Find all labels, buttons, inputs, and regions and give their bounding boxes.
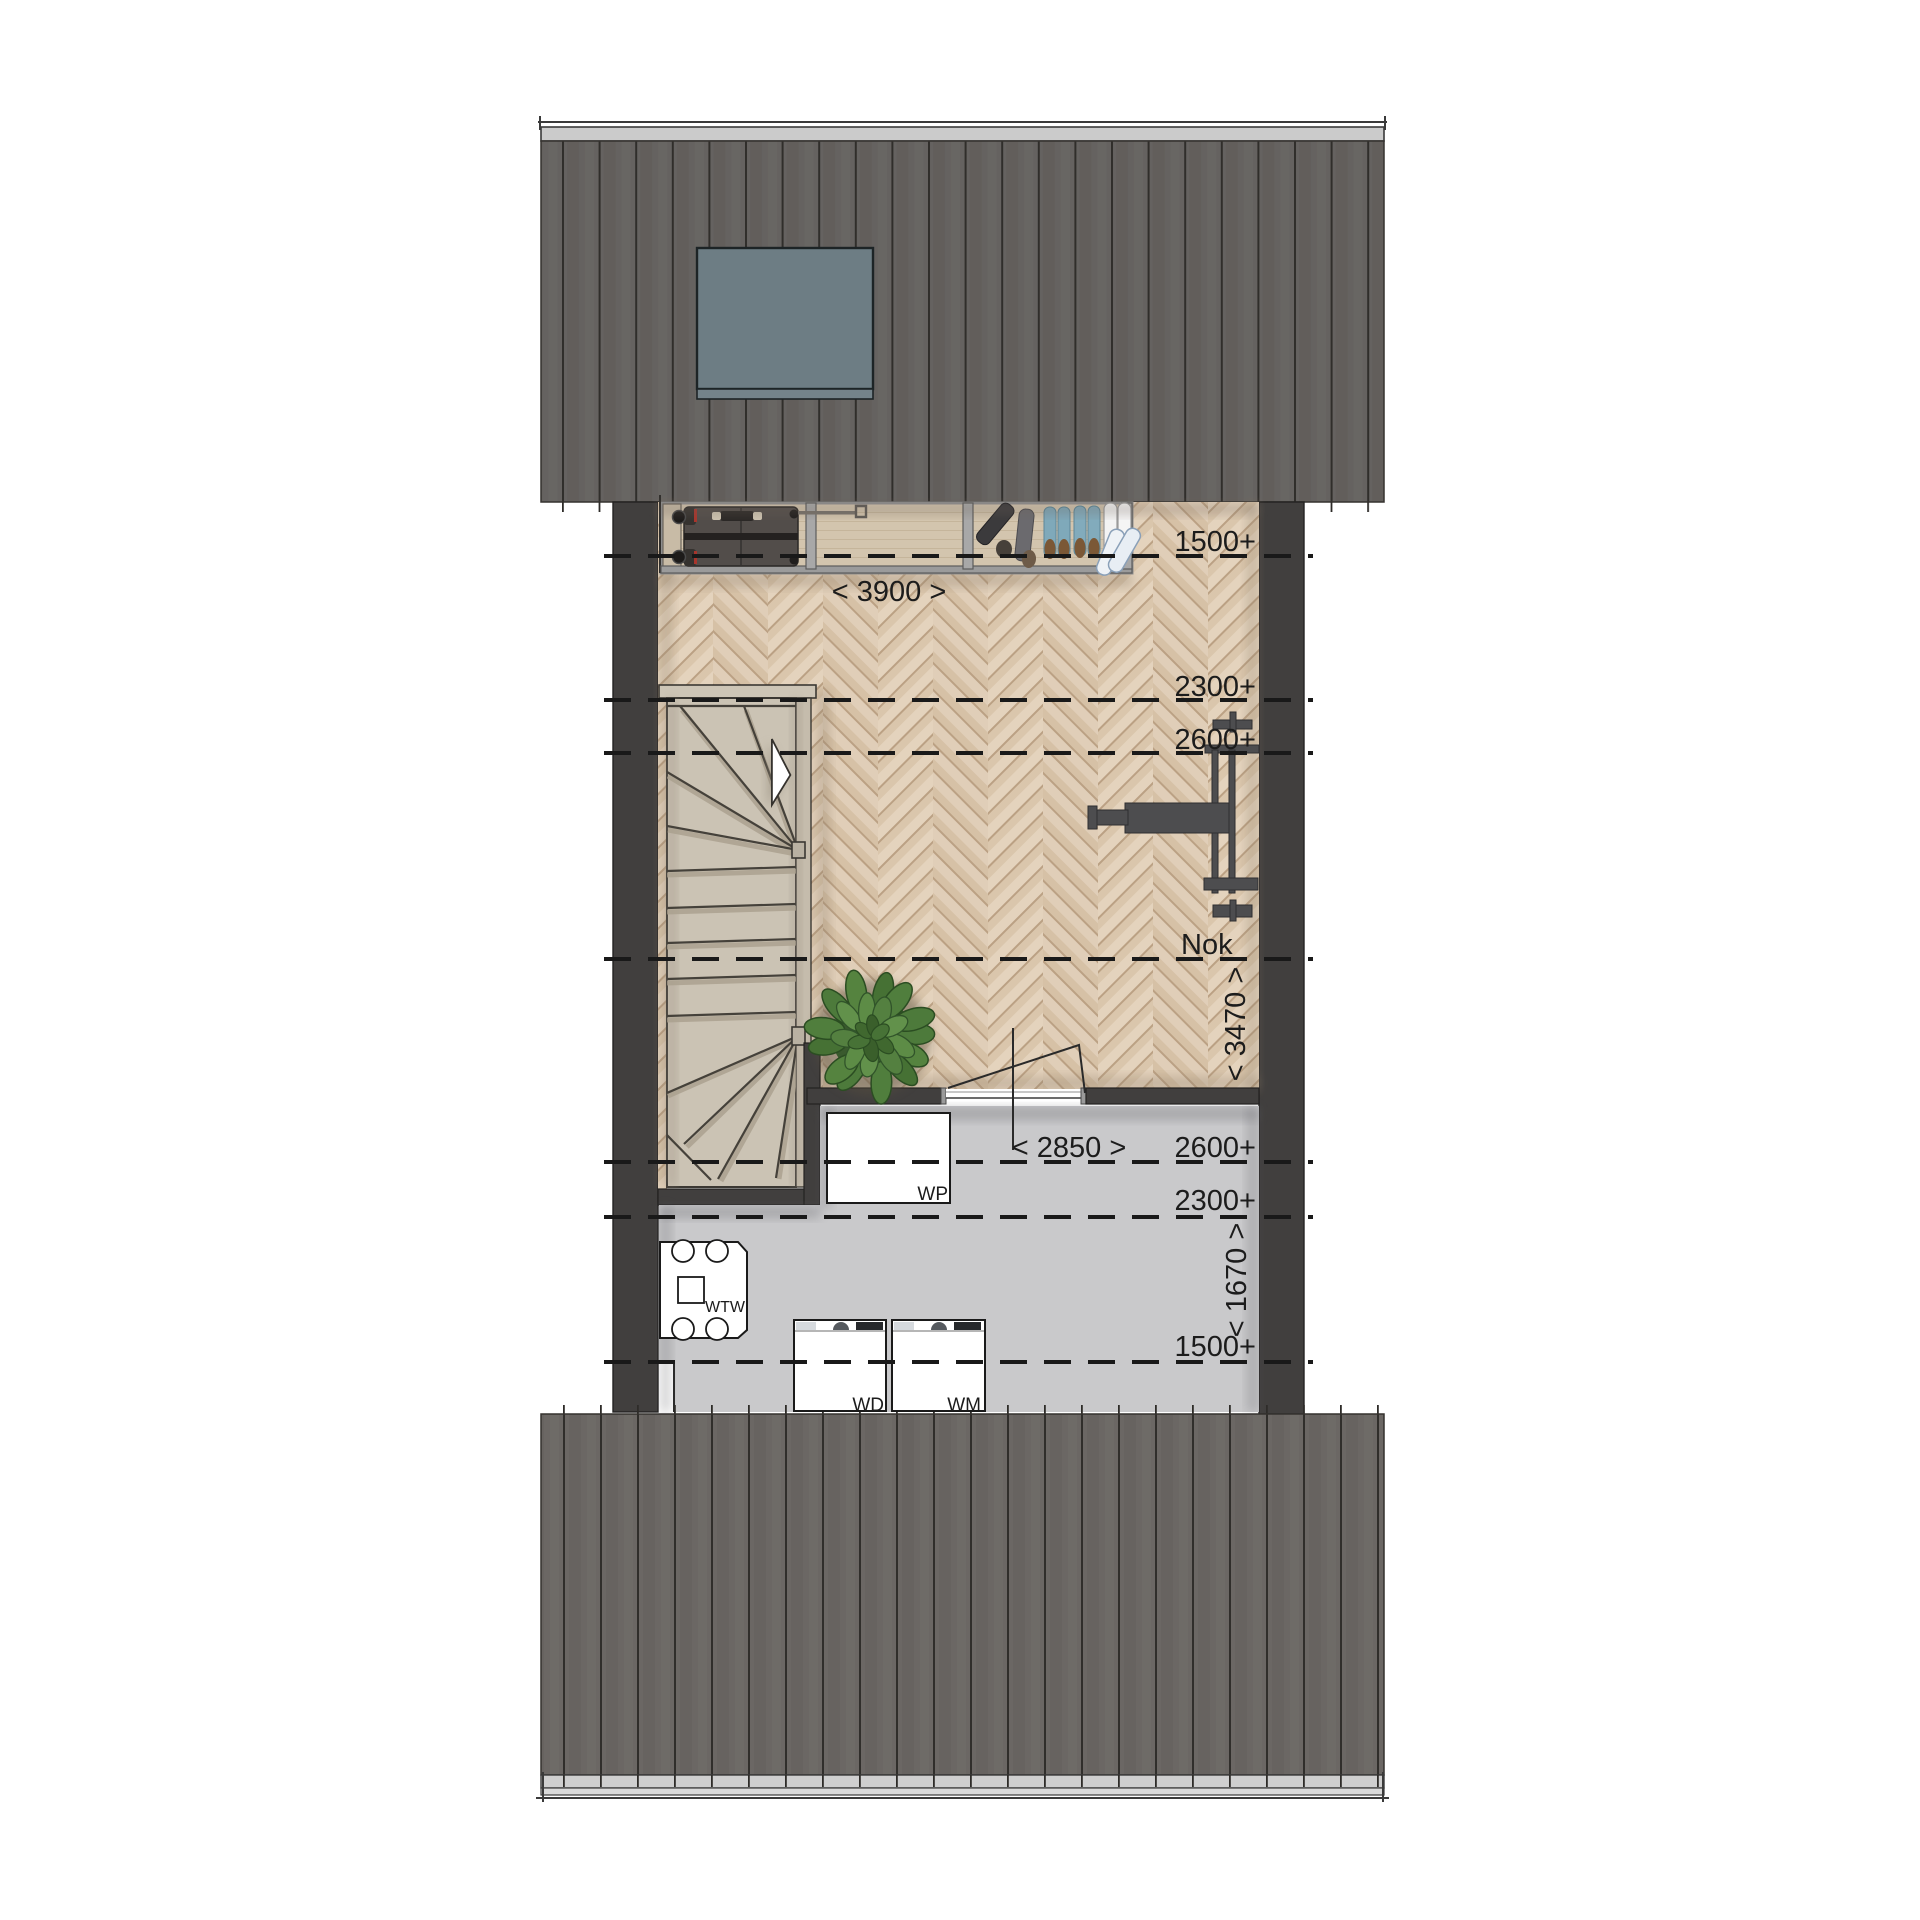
svg-text:2600+: 2600+ [1175, 1132, 1256, 1164]
svg-text:WTW: WTW [705, 1299, 746, 1316]
svg-text:Nok: Nok [1181, 929, 1233, 961]
svg-text:< 2850 >: < 2850 > [1012, 1132, 1127, 1164]
svg-text:< 1670 >: < 1670 > [1221, 1223, 1253, 1338]
svg-text:WP: WP [917, 1184, 948, 1205]
svg-text:1500+: 1500+ [1175, 526, 1256, 558]
svg-text:2300+: 2300+ [1175, 1185, 1256, 1217]
svg-text:1500+: 1500+ [1175, 1331, 1256, 1363]
svg-text:2600+: 2600+ [1175, 724, 1256, 756]
svg-text:2300+: 2300+ [1175, 671, 1256, 703]
svg-text:WD: WD [852, 1395, 884, 1416]
svg-text:< 3900 >: < 3900 > [832, 576, 947, 608]
svg-text:< 3470 >: < 3470 > [1220, 967, 1252, 1082]
svg-text:WM: WM [947, 1395, 981, 1416]
